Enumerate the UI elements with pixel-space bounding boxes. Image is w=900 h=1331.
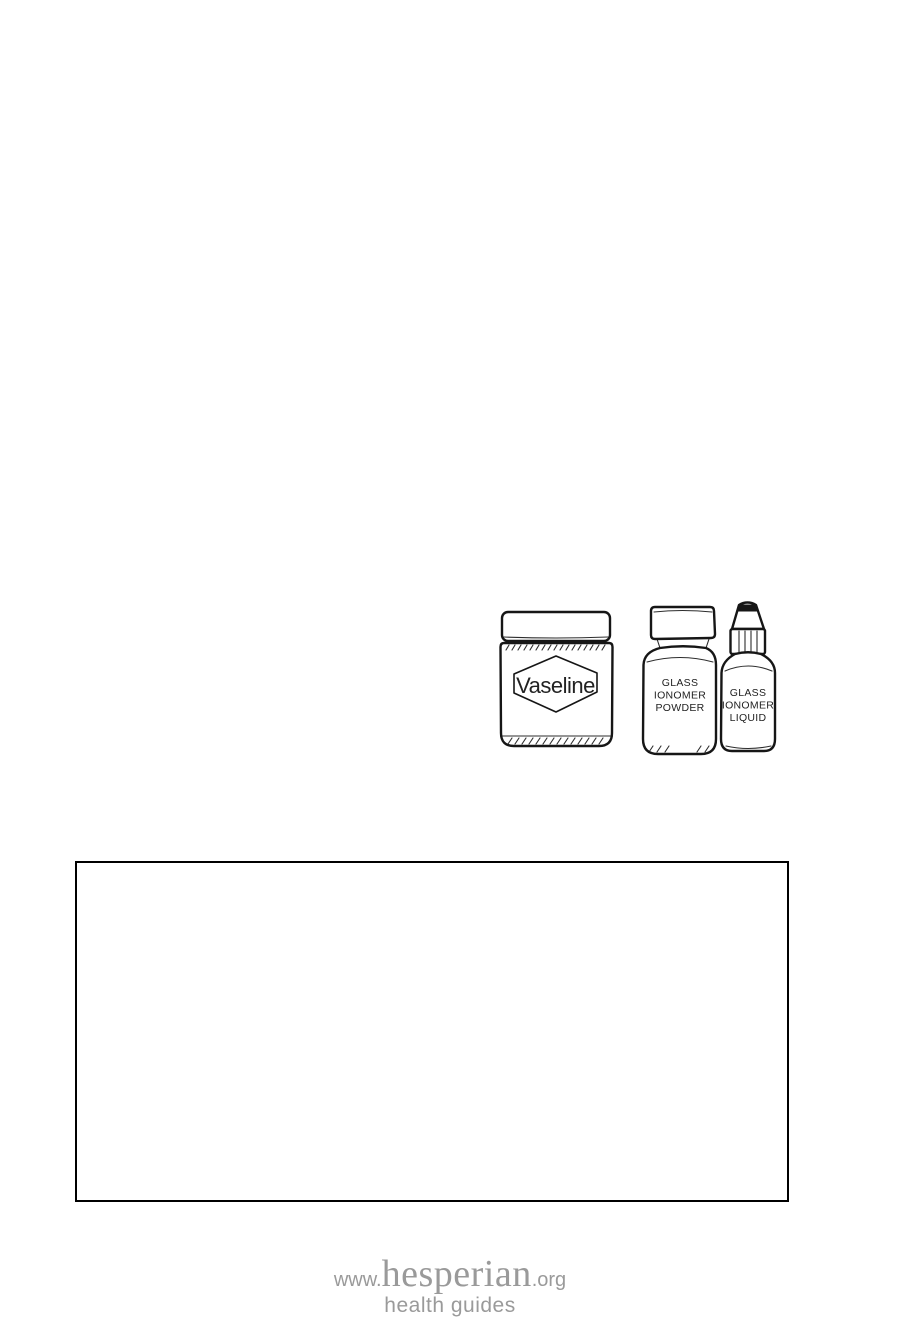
liquid-label-line-1: GLASS <box>730 687 767 699</box>
vaseline-jar: Vaseline <box>501 612 613 746</box>
logo-name-text: hesperian <box>382 1253 532 1295</box>
powder-label-line-2: IONOMER <box>654 690 706 702</box>
powder-label-line-3: POWDER <box>655 702 704 714</box>
powder-label-line-1: GLASS <box>662 677 699 689</box>
glass-ionomer-liquid-bottle: GLASS IONOMER LIQUID <box>721 603 775 752</box>
logo-tld-text: .org <box>532 1269 566 1291</box>
vaseline-label-text: Vaseline <box>516 673 595 698</box>
glass-ionomer-powder-bottle: GLASS IONOMER POWDER <box>643 607 716 754</box>
liquid-label-line-2: IONOMER <box>722 700 774 712</box>
document-page: Vaseline GLASS IONOMER POWDER <box>0 0 900 1331</box>
supplies-drawing: Vaseline GLASS IONOMER POWDER <box>494 598 786 762</box>
liquid-label-line-3: LIQUID <box>730 712 767 724</box>
logo-www-text: www. <box>334 1269 382 1291</box>
dropper-cap-ring <box>731 629 766 654</box>
empty-note-box <box>75 861 789 1202</box>
hesperian-logo: www.hesperian.org health guides <box>0 1256 900 1317</box>
logo-tagline-text: health guides <box>0 1295 900 1317</box>
dropper-nozzle-tip <box>737 605 759 612</box>
vaseline-jar-lid <box>502 612 610 641</box>
supplies-illustration: Vaseline GLASS IONOMER POWDER <box>494 598 786 762</box>
